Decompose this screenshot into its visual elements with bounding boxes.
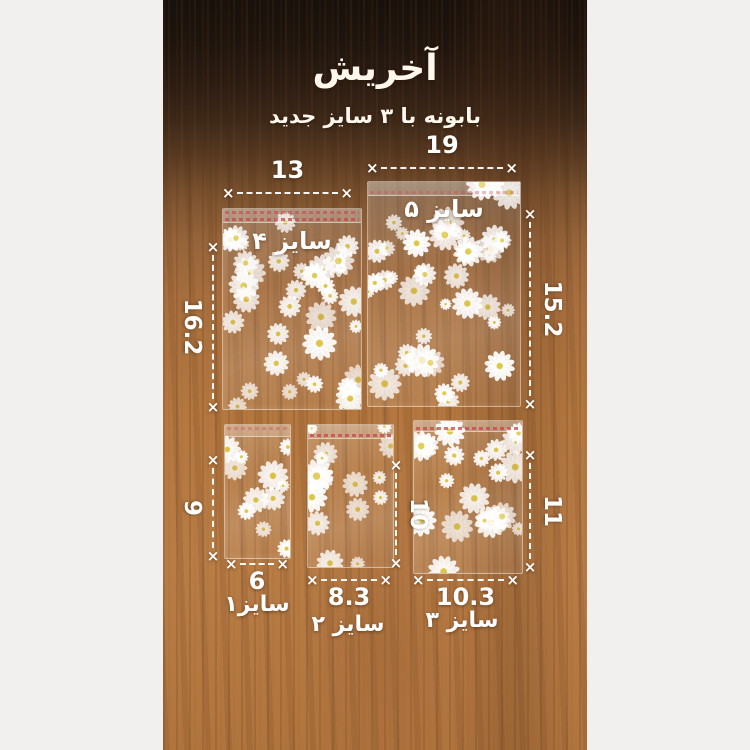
- x-marker: ×: [207, 400, 220, 414]
- width-dimension-size-5: × × 19: [366, 161, 518, 175]
- x-marker: ×: [207, 453, 220, 467]
- flap-print-line: [416, 427, 520, 430]
- dashed-line: [395, 473, 397, 555]
- height-dimension-size-5: × × 15.2: [522, 207, 538, 411]
- x-marker: ×: [390, 556, 403, 570]
- page-title: آخریش: [163, 48, 587, 89]
- x-marker: ×: [506, 573, 519, 587]
- bag-size-4: سایز ۴: [222, 208, 362, 410]
- x-marker: ×: [505, 161, 518, 175]
- dimension-value: 10: [405, 498, 431, 530]
- x-marker: ×: [390, 458, 403, 472]
- dashed-line: [237, 192, 339, 194]
- dimension-value: 6: [249, 567, 266, 595]
- dimension-value: 8.3: [328, 583, 371, 611]
- daisy-print: [308, 425, 393, 567]
- dimension-value: 11: [539, 495, 565, 527]
- x-marker: ×: [379, 573, 392, 587]
- dashed-line: [427, 579, 505, 581]
- bag-flap: [223, 209, 361, 223]
- x-marker: ×: [524, 397, 537, 411]
- flap-print-line: [225, 218, 359, 221]
- bag-flap: [225, 425, 290, 437]
- width-dimension-size-2: × × 8.3: [306, 573, 392, 587]
- product-photo: آخریش بابونه با ۳ سایز جدید سایز ۴ سایز …: [163, 0, 587, 750]
- bag-size-5: سایز ۵: [367, 181, 521, 407]
- dashed-line: [212, 468, 214, 548]
- x-marker: ×: [222, 186, 235, 200]
- dimension-value: 19: [425, 131, 458, 159]
- height-dimension-size-3: × × 9 11: [522, 448, 538, 574]
- page-subtitle: بابونه با ۳ سایز جدید: [163, 104, 587, 128]
- x-marker: ×: [225, 557, 238, 571]
- height-dimension-size-4: × × 16.2: [205, 240, 221, 414]
- x-marker: ×: [524, 560, 537, 574]
- x-marker: ×: [306, 573, 319, 587]
- x-marker: ×: [276, 557, 289, 571]
- flap-print-line: [225, 211, 359, 214]
- x-marker: ×: [340, 186, 353, 200]
- dashed-line: [381, 167, 504, 169]
- bag-flap: [368, 182, 520, 196]
- dashed-line: [529, 222, 531, 396]
- x-marker: ×: [524, 207, 537, 221]
- caption-size-2: سایز ۲: [283, 612, 413, 637]
- bag-size-1: [224, 424, 291, 559]
- daisy-print: [225, 425, 290, 558]
- letterbox-right: [587, 0, 750, 750]
- bag-flap: [414, 421, 522, 432]
- flap-print-line: [227, 427, 288, 430]
- dashed-line: [529, 463, 531, 559]
- width-dimension-size-3: × × 10.3: [412, 573, 519, 587]
- letterbox-left: [0, 0, 163, 750]
- bag-size-2: [307, 424, 394, 568]
- x-marker: ×: [412, 573, 425, 587]
- dimension-value: 9: [179, 500, 205, 516]
- height-dimension-size-1: × × 9: [205, 453, 221, 563]
- caption-size-3: سایز ۳: [397, 608, 527, 633]
- x-marker: ×: [366, 161, 379, 175]
- width-dimension-size-1: × × 6: [225, 557, 289, 571]
- bag-flap: [308, 425, 393, 439]
- dimension-value: 10.3: [436, 583, 495, 611]
- height-dimension-size-2: × × 10: [388, 458, 404, 570]
- dashed-line: [240, 563, 275, 565]
- x-marker: ×: [207, 549, 220, 563]
- flap-print-line: [310, 434, 391, 437]
- dashed-line: [212, 255, 214, 399]
- bag-size-label: سایز ۵: [368, 195, 520, 223]
- dashed-line: [321, 579, 378, 581]
- bag-size-label: سایز ۴: [223, 227, 361, 255]
- flap-print-line: [370, 191, 518, 194]
- width-dimension-size-4: × × 13: [222, 186, 353, 200]
- dimension-value: 13: [271, 156, 304, 184]
- x-marker: ×: [524, 448, 537, 462]
- dimension-value: 16.2: [179, 299, 205, 356]
- dimension-value: 15.2: [539, 281, 565, 338]
- x-marker: ×: [207, 240, 220, 254]
